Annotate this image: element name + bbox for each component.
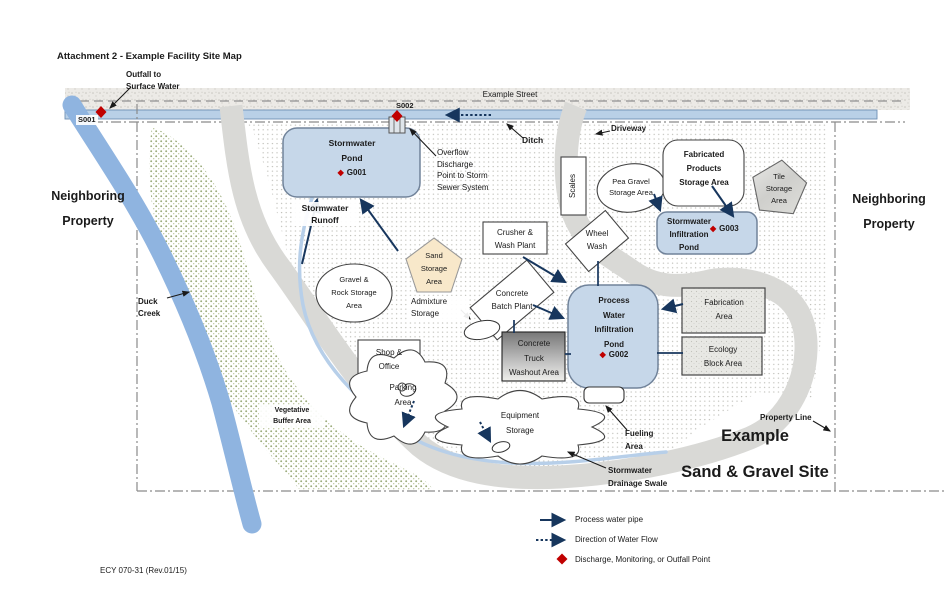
outfall-label: Outfall to Surface Water [126, 69, 196, 93]
g003-diamond-icon: ◆ [710, 224, 716, 233]
fabrication-area-label: Fabrication Area [684, 296, 764, 324]
neighboring-property-right: Neighboring Property [834, 187, 944, 237]
legend-item-pipe: Process water pipe [575, 515, 705, 525]
scales-label: Scales [561, 157, 585, 215]
s002-label: S002 [396, 101, 414, 111]
shop-office-label: Shop & Office [360, 346, 418, 374]
fabricated-products-label: Fabricated Products Storage Area [665, 148, 743, 190]
pea-gravel-label: Pea Gravel Storage Area [597, 176, 665, 198]
g001-point: ◆G001 [287, 168, 417, 177]
legend-item-flow: Direction of Water Flow [575, 535, 725, 545]
legend-diamond-icon [557, 554, 568, 565]
parking-area-label: Parking Area [374, 380, 432, 410]
example-street-label: Example Street [470, 90, 550, 100]
site-title: Example Sand & Gravel Site [660, 418, 850, 490]
stormwater-infiltration-pond-label: Stormwater Infiltration Pond [660, 215, 718, 254]
crusher-wash-plant-label: Crusher & Wash Plant [484, 226, 546, 252]
neighboring-property-left: Neighboring Property [36, 184, 140, 234]
process-pond-label: Process Water Infiltration Pond [574, 294, 654, 352]
stormwater-pond-label: Stormwater Pond [287, 136, 417, 166]
page-title: Attachment 2 - Example Facility Site Map [57, 51, 377, 63]
vegetative-buffer-label: Vegetative Buffer Area [259, 405, 325, 427]
tile-storage-label: Tile Storage Area [753, 171, 805, 207]
facility-site-map: Attachment 2 - Example Facility Site Map… [0, 0, 950, 615]
duck-creek-label: Duck Creek [138, 296, 160, 320]
driveway-label: Driveway [611, 124, 646, 134]
stormwater-runoff-label: Stormwater Runoff [294, 202, 356, 226]
ditch-label: Ditch [522, 135, 543, 146]
form-number: ECY 070-31 (Rev.01/15) [100, 566, 270, 576]
g001-id: G001 [347, 168, 367, 177]
g002-point: ◆G002 [574, 350, 654, 359]
ecology-block-label: Ecology Block Area [684, 343, 762, 370]
g002-diamond-icon: ◆ [600, 350, 606, 359]
g002-id: G002 [609, 350, 629, 359]
fueling-area-label: Fueling Area [625, 427, 653, 453]
fueling-area-shape [584, 387, 624, 403]
sand-storage-label: Sand Storage Area [409, 249, 459, 288]
concrete-truck-washout-label: Concrete Truck Washout Area [504, 337, 564, 381]
equipment-storage-label: Equipment Storage [482, 408, 558, 438]
gravel-rock-label: Gravel & Rock Storage Area [316, 273, 392, 312]
legend-item-discharge: Discharge, Monitoring, or Outfall Point [575, 555, 785, 565]
g001-diamond-icon: ◆ [338, 168, 344, 177]
wheel-wash-label: Wheel Wash [571, 227, 623, 253]
admixture-storage-label: Admixture Storage [409, 296, 469, 320]
legend-glyphs [536, 520, 568, 565]
s001-label: S001 [76, 115, 98, 125]
g003-id: G003 [719, 224, 739, 233]
overflow-discharge-label: Overflow Discharge Point to Storm Sewer … [437, 147, 507, 193]
g003-point: ◆G003 [710, 224, 756, 233]
concrete-batch-plant-label: Concrete Batch Plant [478, 287, 546, 313]
